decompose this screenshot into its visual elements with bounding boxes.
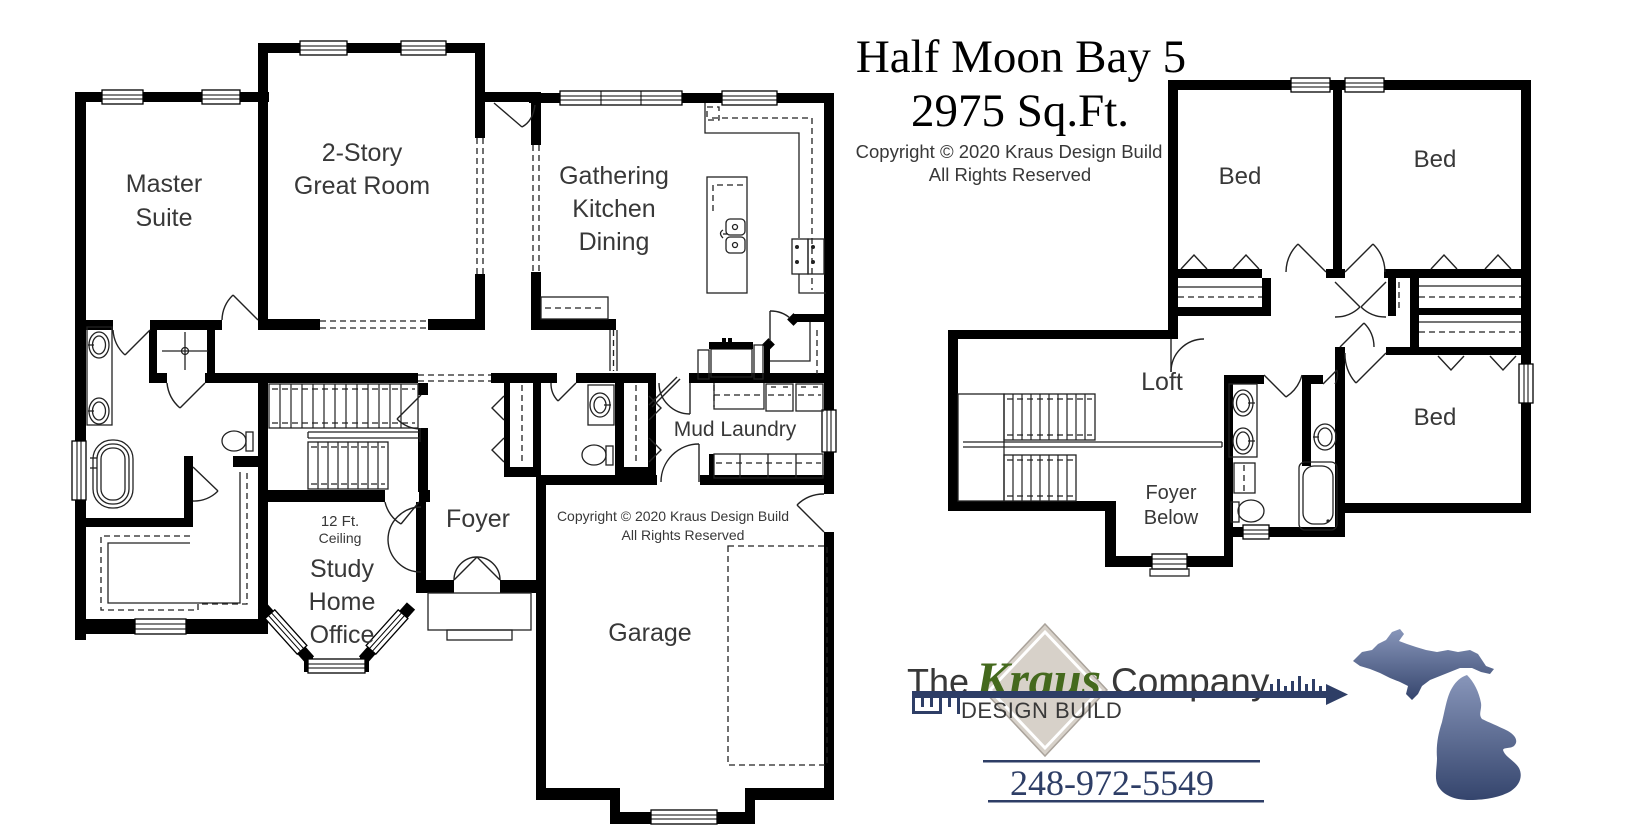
svg-text:DESIGN BUILD: DESIGN BUILD bbox=[961, 698, 1122, 723]
svg-text:Bed: Bed bbox=[1414, 404, 1457, 431]
svg-text:Bed: Bed bbox=[1219, 163, 1262, 190]
svg-text:Ceiling: Ceiling bbox=[319, 530, 362, 546]
svg-text:Dining: Dining bbox=[579, 228, 650, 256]
svg-text:2-Story: 2-Story bbox=[322, 139, 403, 167]
svg-text:Foyer: Foyer bbox=[446, 505, 510, 533]
svg-text:All Rights Reserved: All Rights Reserved bbox=[622, 527, 745, 543]
svg-text:Suite: Suite bbox=[136, 204, 193, 232]
svg-text:Half Moon Bay 5: Half Moon Bay 5 bbox=[856, 31, 1186, 83]
svg-text:Loft: Loft bbox=[1141, 368, 1183, 396]
svg-text:Office: Office bbox=[310, 621, 375, 649]
svg-text:Below: Below bbox=[1144, 507, 1199, 529]
svg-text:Copyright © 2020 Kraus Design: Copyright © 2020 Kraus Design Build bbox=[856, 141, 1163, 162]
svg-text:All Rights Reserved: All Rights Reserved bbox=[929, 164, 1091, 185]
svg-text:Study: Study bbox=[310, 555, 374, 583]
svg-text:Mud Laundry: Mud Laundry bbox=[674, 418, 797, 441]
svg-text:Copyright © 2020 Kraus Design: Copyright © 2020 Kraus Design Build bbox=[557, 508, 789, 524]
svg-text:Home: Home bbox=[309, 588, 376, 616]
svg-text:Bed: Bed bbox=[1414, 146, 1457, 173]
svg-text:Master: Master bbox=[126, 170, 202, 198]
svg-text:Kitchen: Kitchen bbox=[572, 195, 655, 223]
svg-text:Garage: Garage bbox=[608, 619, 691, 647]
svg-text:248-972-5549: 248-972-5549 bbox=[1010, 763, 1214, 803]
svg-text:Great Room: Great Room bbox=[294, 172, 430, 200]
svg-text:Foyer: Foyer bbox=[1145, 482, 1196, 504]
svg-text:Gathering: Gathering bbox=[559, 162, 669, 190]
svg-text:2975 Sq.Ft.: 2975 Sq.Ft. bbox=[911, 85, 1129, 137]
svg-text:12 Ft.: 12 Ft. bbox=[321, 513, 359, 530]
